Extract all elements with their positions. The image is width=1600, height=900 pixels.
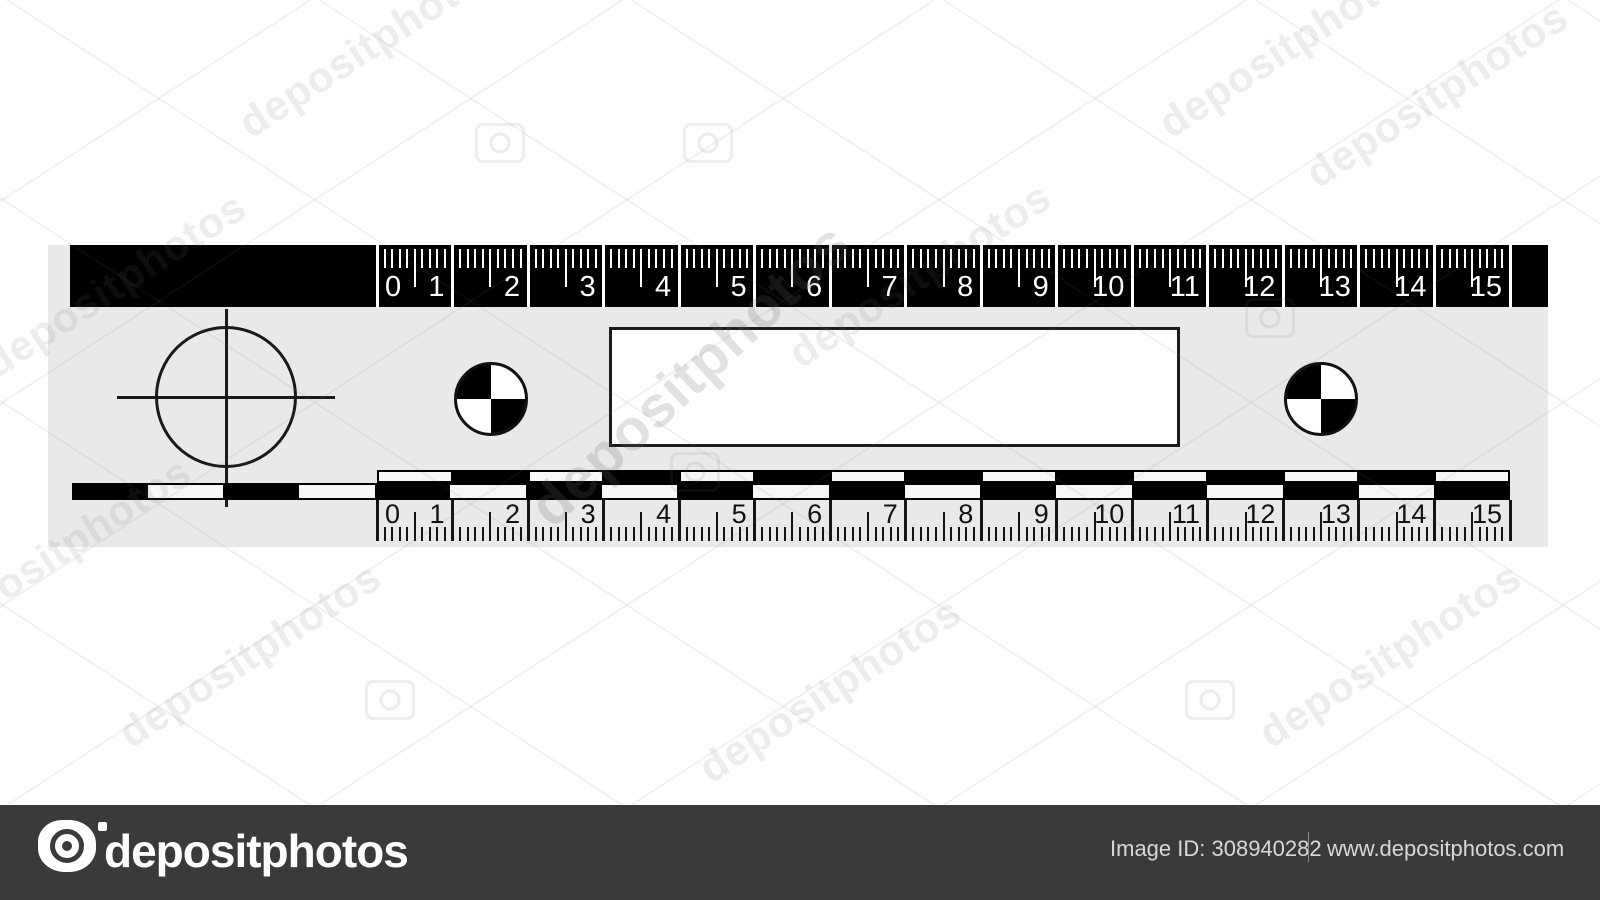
checker-cell: [223, 485, 299, 498]
watermark-text: depositphotos: [110, 553, 390, 758]
checker-cell: [1132, 485, 1208, 498]
crosshair-circle: [155, 326, 297, 468]
calibration-target-icon-left: [454, 362, 528, 436]
checker-cell: [1436, 472, 1508, 481]
depositphotos-logo-text: depositphotos: [104, 824, 408, 878]
checker-cell: [983, 472, 1055, 481]
camera-lens-icon: [50, 829, 84, 863]
checker-cell: [677, 485, 753, 498]
checker-bar-bottom-row: [72, 483, 1510, 500]
checker-bar-top-row: [377, 470, 1510, 483]
checker-cell: [1434, 485, 1510, 498]
watermark-text: depositphotos: [230, 0, 510, 147]
checker-cell: [1285, 472, 1357, 481]
checker-cell: [526, 485, 602, 498]
watermark-camera-lens-icon: [1200, 690, 1221, 711]
website-url-text: www.depositphotos.com: [1327, 836, 1564, 862]
image-id-text: Image ID: 308940282: [1110, 836, 1322, 862]
watermark-camera-lens-icon: [380, 690, 401, 711]
footer-separator: [1308, 832, 1309, 862]
watermark-camera-icon: [365, 680, 415, 720]
watermark-camera-lens-icon: [490, 133, 511, 154]
checker-cell: [379, 472, 451, 481]
ruler-top-band: [70, 245, 1548, 307]
checker-cell: [681, 472, 753, 481]
watermark-text: depositphotos: [1150, 0, 1430, 147]
calibration-target-icon-right: [1284, 362, 1358, 436]
depositphotos-camera-icon: [38, 820, 96, 872]
stock-photo-page: 0123456789101112131415012345678910111213…: [0, 0, 1600, 900]
blank-label-box: [609, 327, 1180, 447]
checker-cell: [829, 485, 905, 498]
watermark-text: depositphotos: [1250, 553, 1530, 758]
checker-cell: [375, 485, 451, 498]
watermark-camera-icon: [475, 123, 525, 163]
watermark-camera-lens-icon: [698, 133, 719, 154]
watermark-camera-icon: [1185, 680, 1235, 720]
watermark-text: depositphotos: [690, 588, 970, 793]
checker-cell: [1283, 485, 1359, 498]
checker-cell: [530, 472, 602, 481]
checker-cell: [72, 485, 148, 498]
watermark-text: depositphotos: [1297, 0, 1577, 197]
checker-cell: [980, 485, 1056, 498]
watermark-camera-icon: [683, 123, 733, 163]
checker-cell: [832, 472, 904, 481]
checker-cell: [1134, 472, 1206, 481]
